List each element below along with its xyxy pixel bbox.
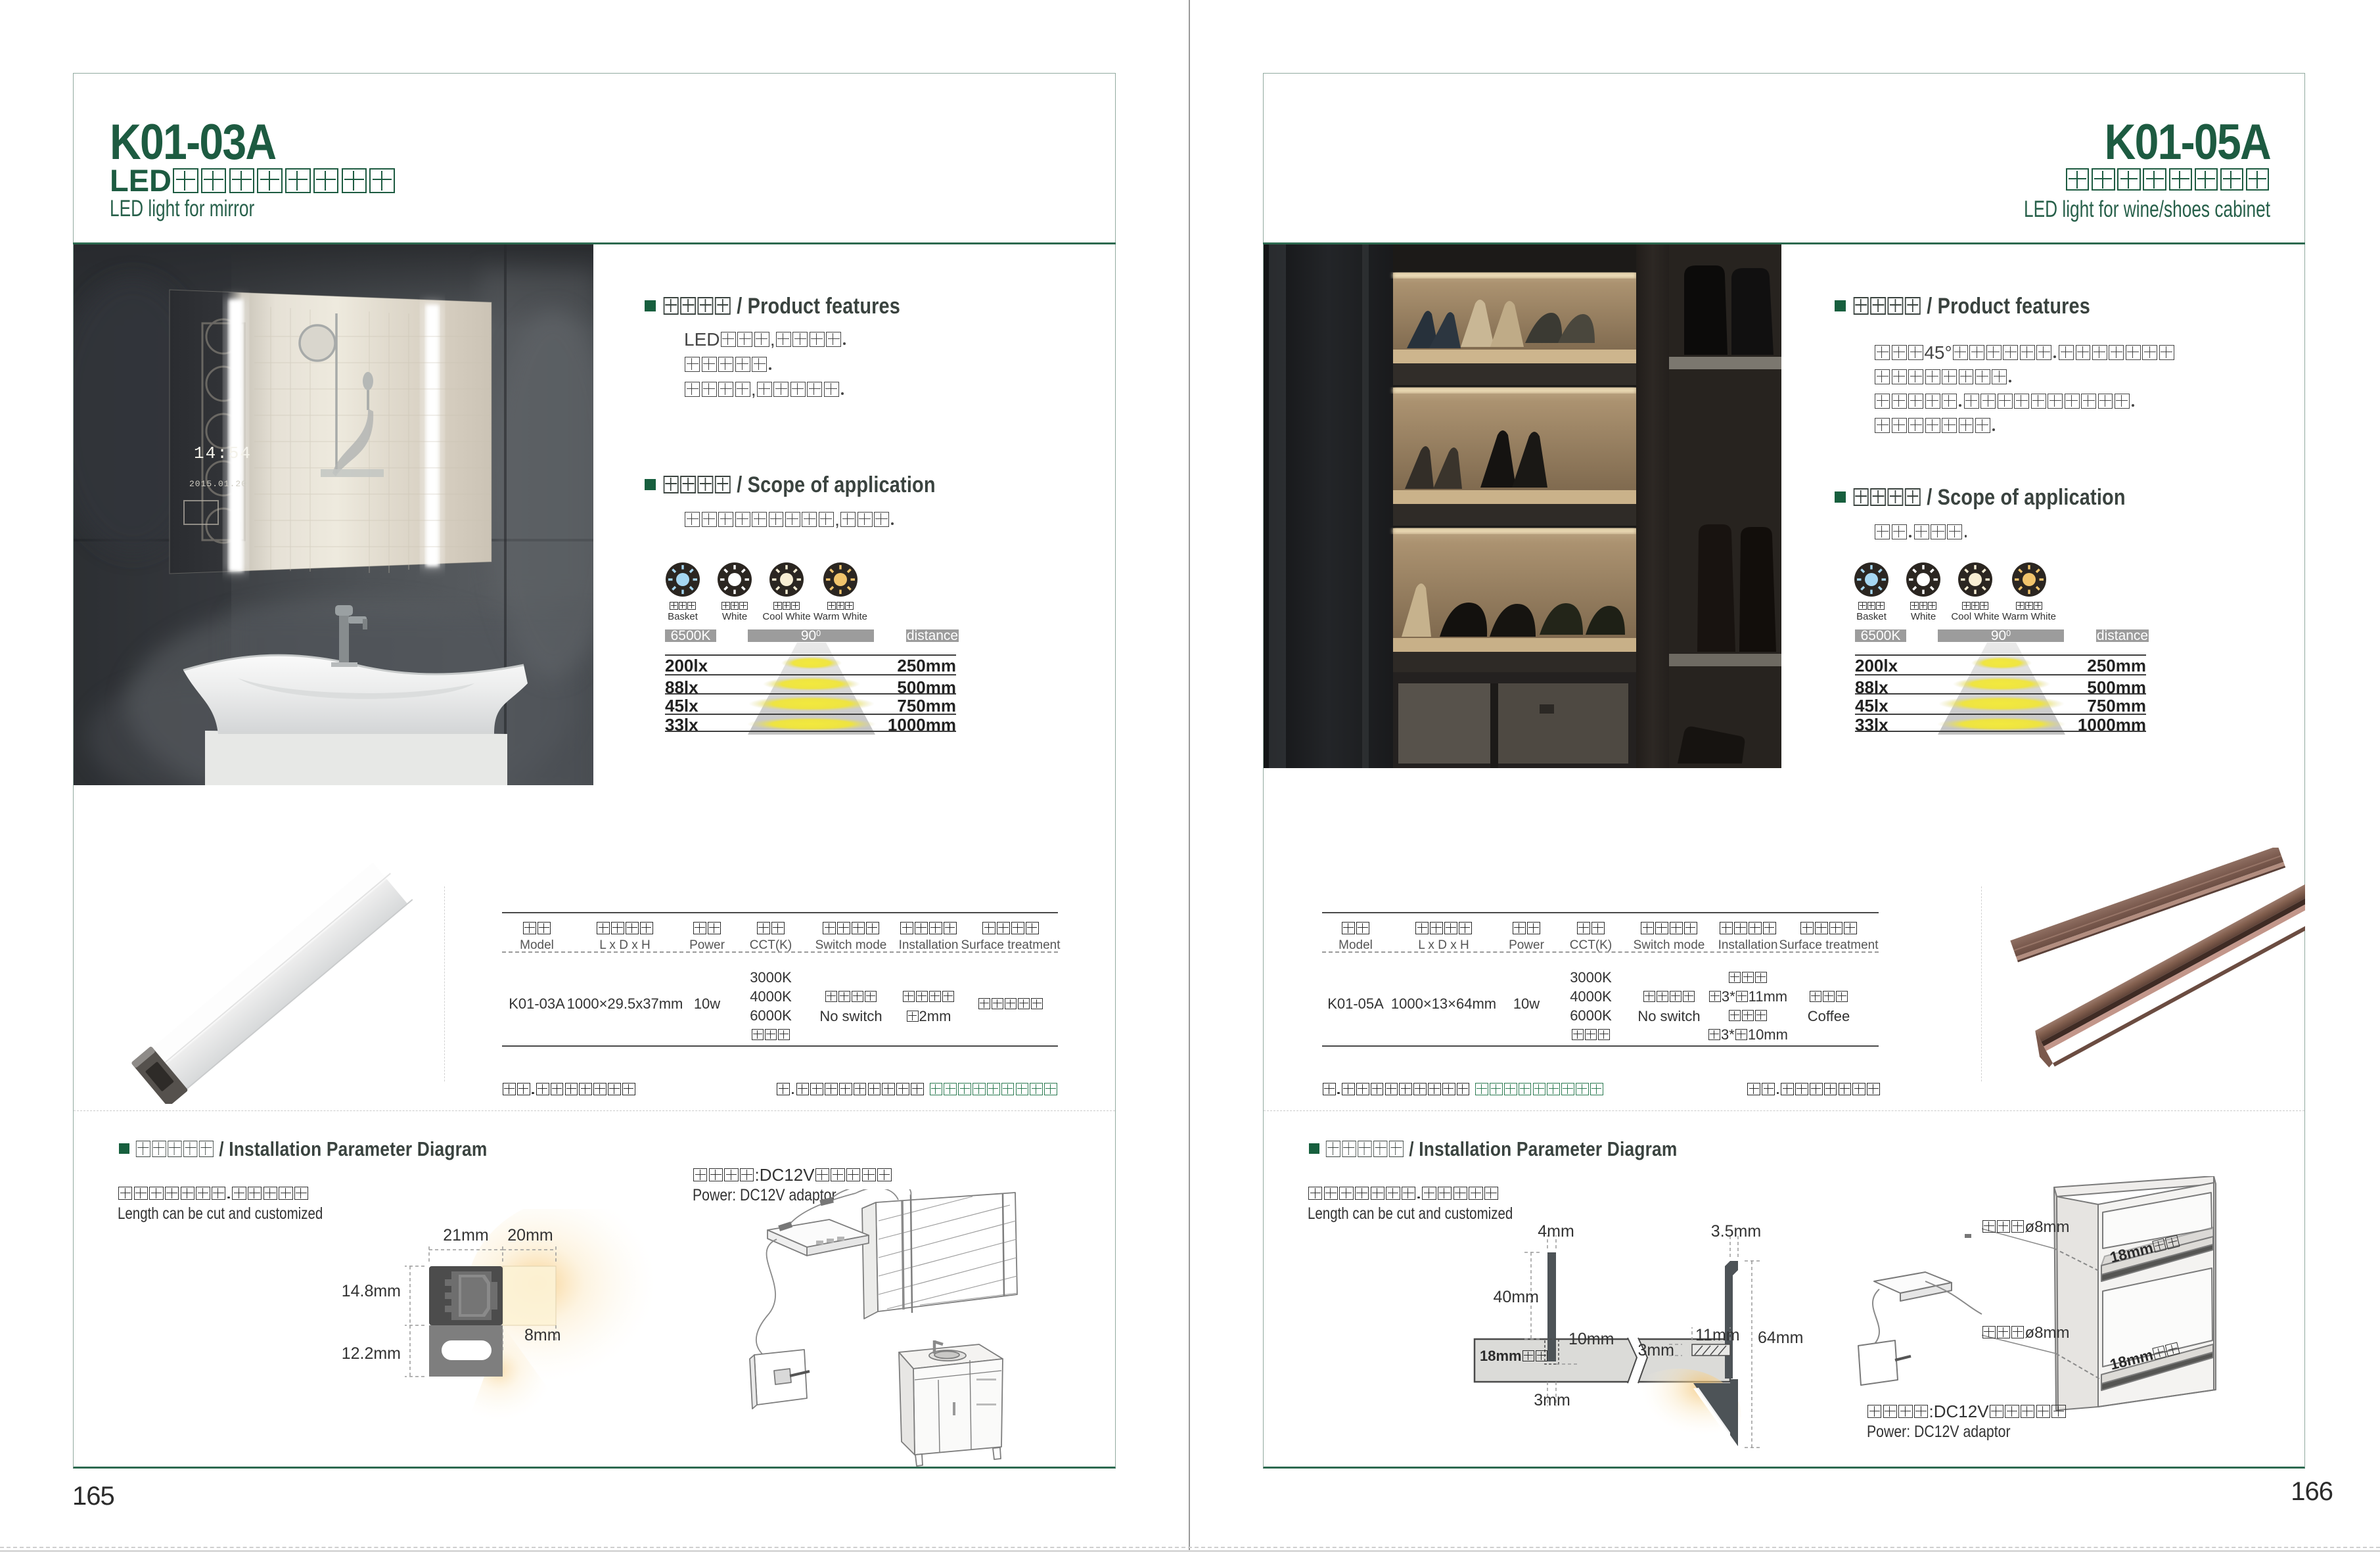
svg-text:12.2mm: 12.2mm <box>342 1344 401 1363</box>
svg-text:2015.01.20: 2015.01.20 <box>189 479 247 489</box>
svg-text:14:54: 14:54 <box>194 444 252 463</box>
svg-text:11mm: 11mm <box>1695 1326 1740 1344</box>
svg-text:64mm: 64mm <box>1758 1329 1803 1347</box>
svg-text:40mm: 40mm <box>1494 1288 1539 1306</box>
svg-text:3mm: 3mm <box>1637 1341 1674 1359</box>
svg-text:14.8mm: 14.8mm <box>342 1282 401 1300</box>
svg-text:3mm: 3mm <box>1534 1391 1570 1409</box>
svg-text:20mm: 20mm <box>507 1226 553 1244</box>
svg-text:8mm: 8mm <box>524 1326 561 1344</box>
svg-text:10mm: 10mm <box>1568 1330 1614 1348</box>
svg-text:3.5mm: 3.5mm <box>1711 1222 1761 1241</box>
svg-text:4mm: 4mm <box>1538 1222 1574 1241</box>
svg-text:21mm: 21mm <box>443 1226 488 1244</box>
